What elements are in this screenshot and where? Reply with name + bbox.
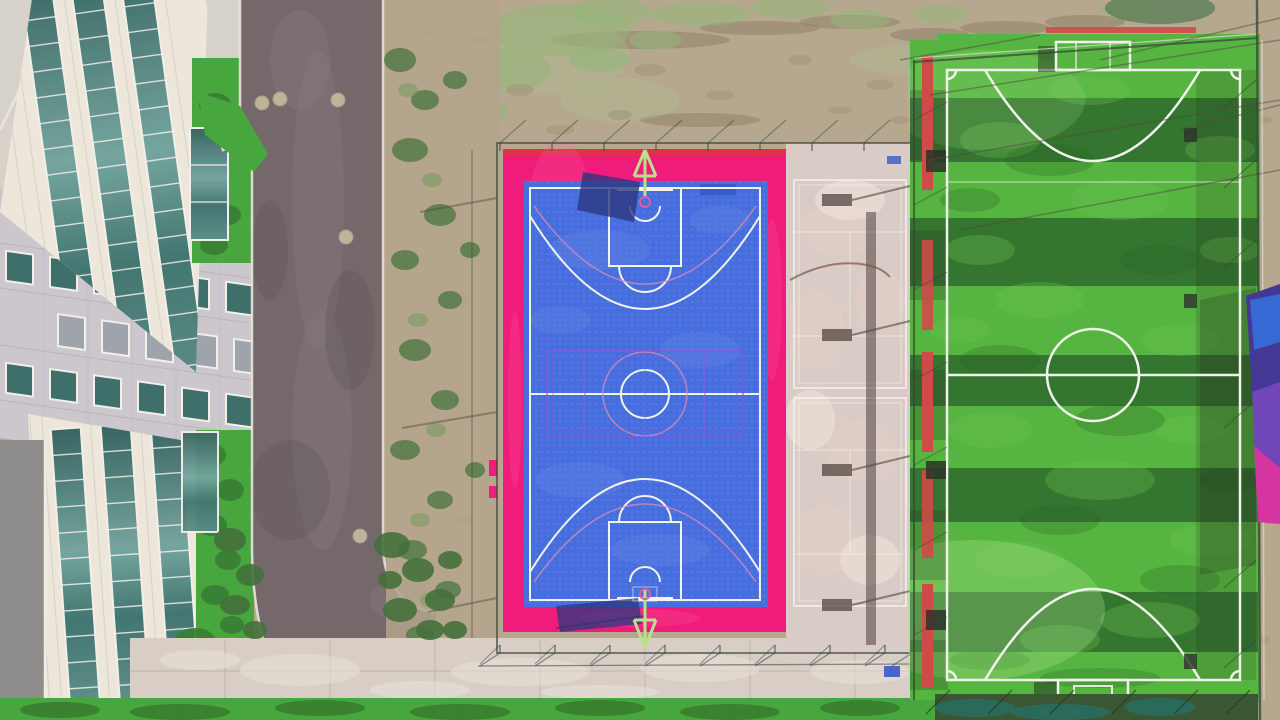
photo-wash xyxy=(0,0,1280,720)
aerial-photo xyxy=(0,0,1280,720)
aerial-photo-stage: Top-down aerial view of campus sports fa… xyxy=(0,0,1280,720)
